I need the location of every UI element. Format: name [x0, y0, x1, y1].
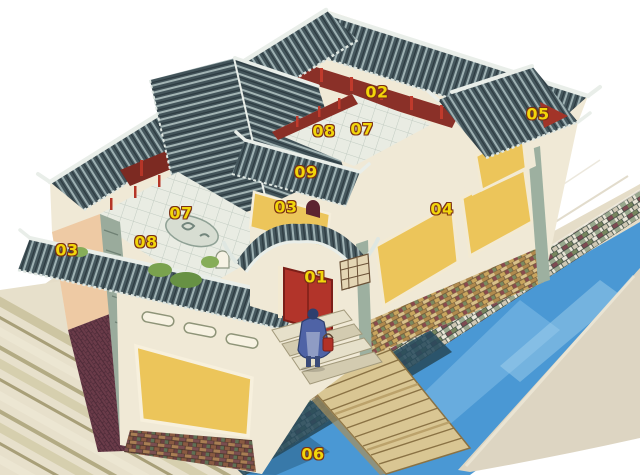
red-bucket	[323, 338, 333, 351]
figure-apron	[306, 332, 320, 357]
courtyard-house-illustration	[0, 0, 640, 475]
illustration-canvas: 020508070903040708030106	[0, 0, 640, 475]
figure-head	[308, 309, 319, 320]
